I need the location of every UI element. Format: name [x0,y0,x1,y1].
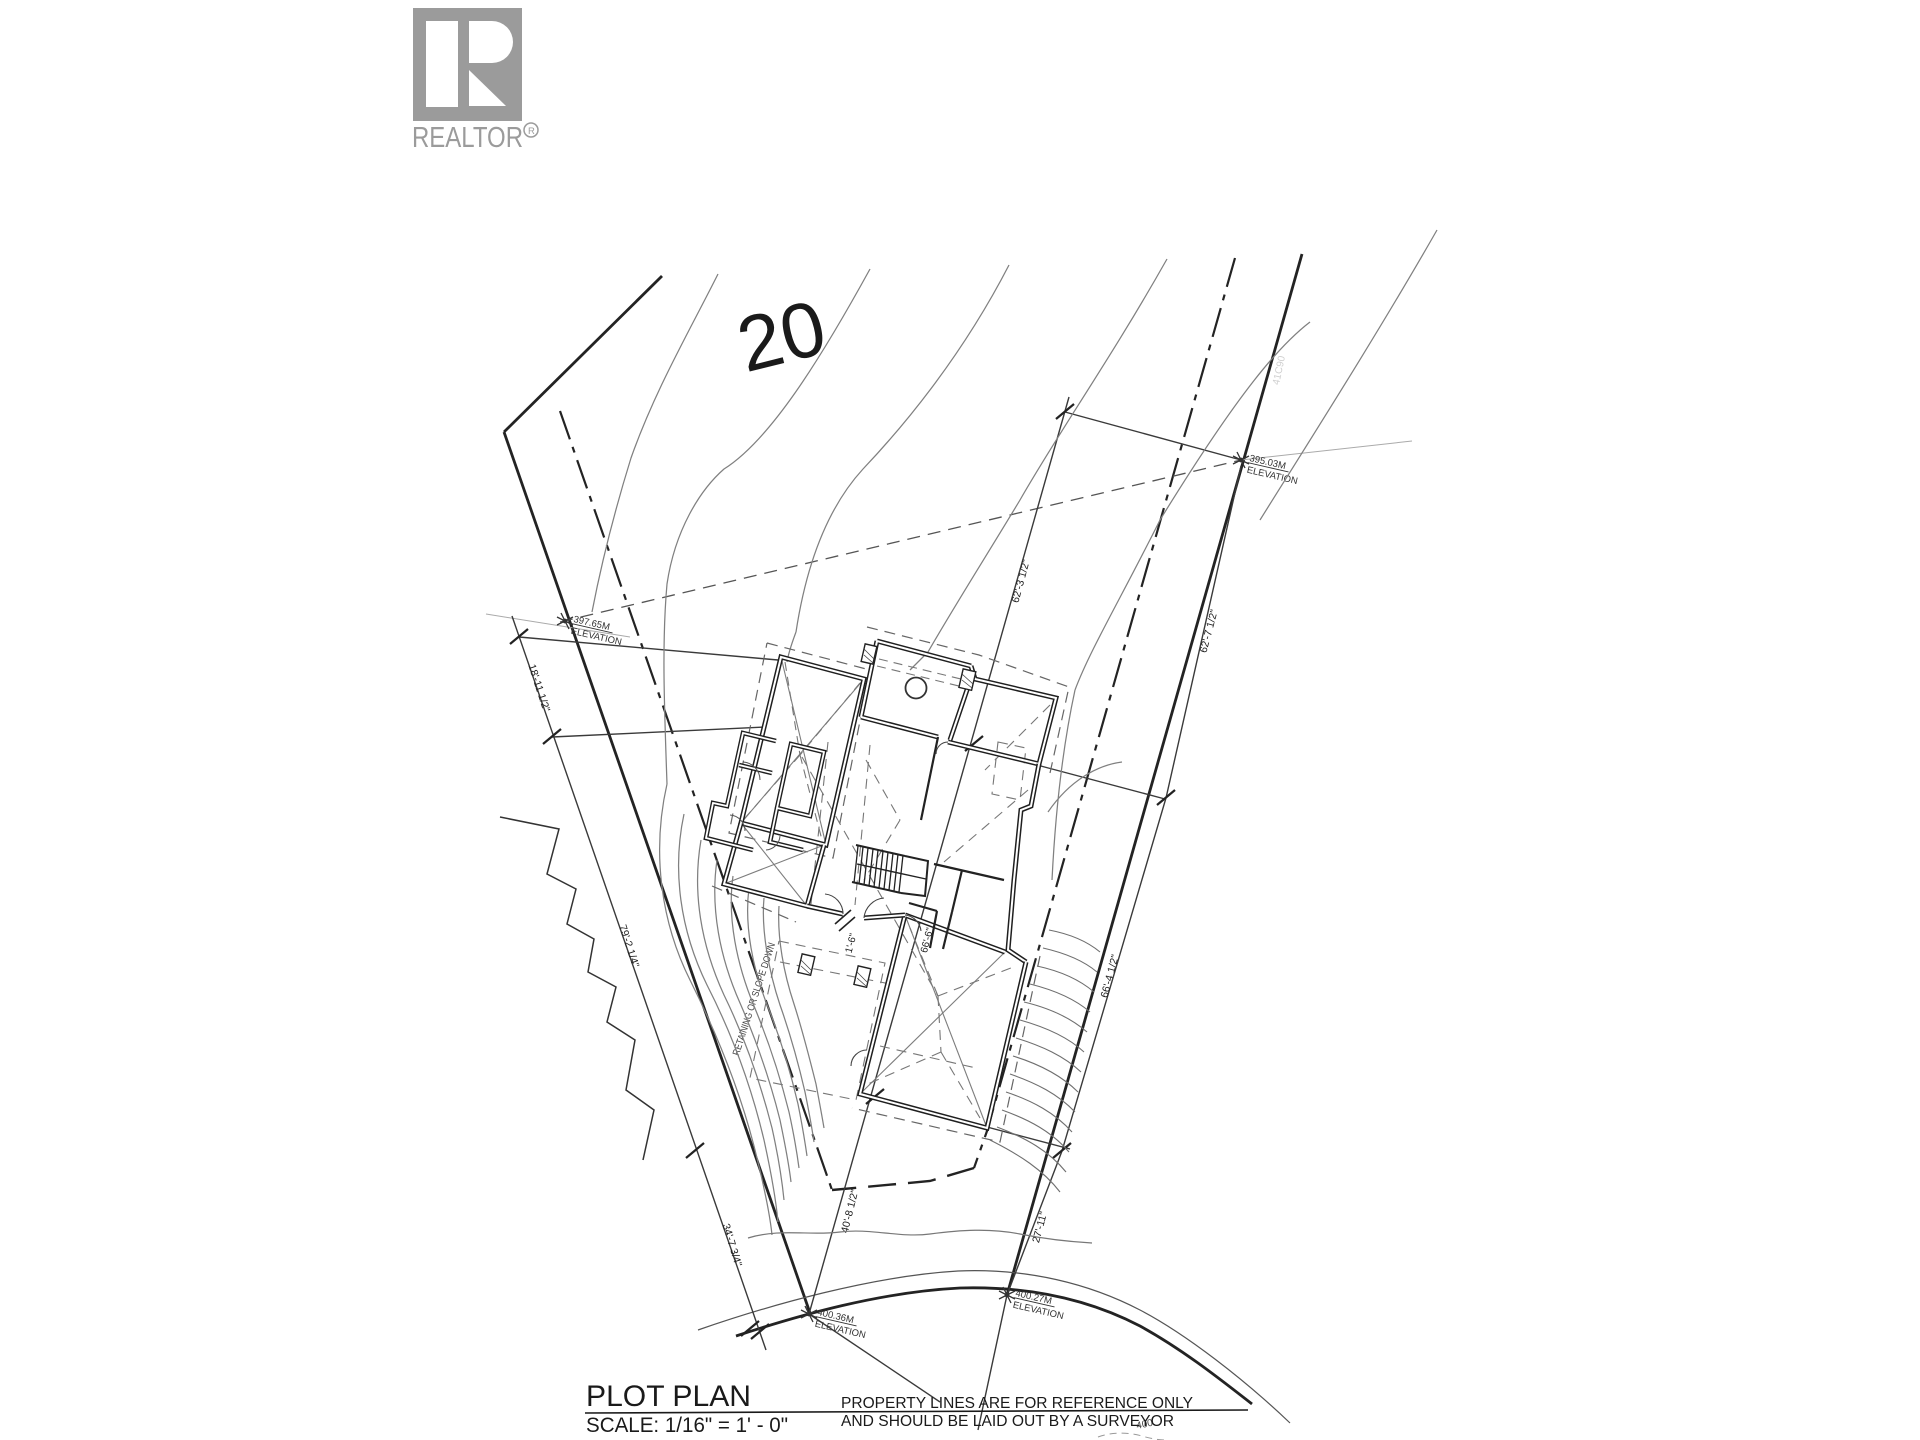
svg-text:PROPERTY LINES ARE FOR REFEREN: PROPERTY LINES ARE FOR REFERENCE ONLY [841,1395,1193,1412]
svg-text:SCALE: 1/16" = 1' - 0": SCALE: 1/16" = 1' - 0" [586,1414,788,1437]
svg-text:R: R [528,126,535,137]
svg-text:AND SHOULD BE LAID OUT BY A SU: AND SHOULD BE LAID OUT BY A SURVEYOR [841,1413,1174,1430]
svg-text:PLOT PLAN: PLOT PLAN [586,1380,751,1413]
svg-text:REALTOR: REALTOR [412,122,523,154]
